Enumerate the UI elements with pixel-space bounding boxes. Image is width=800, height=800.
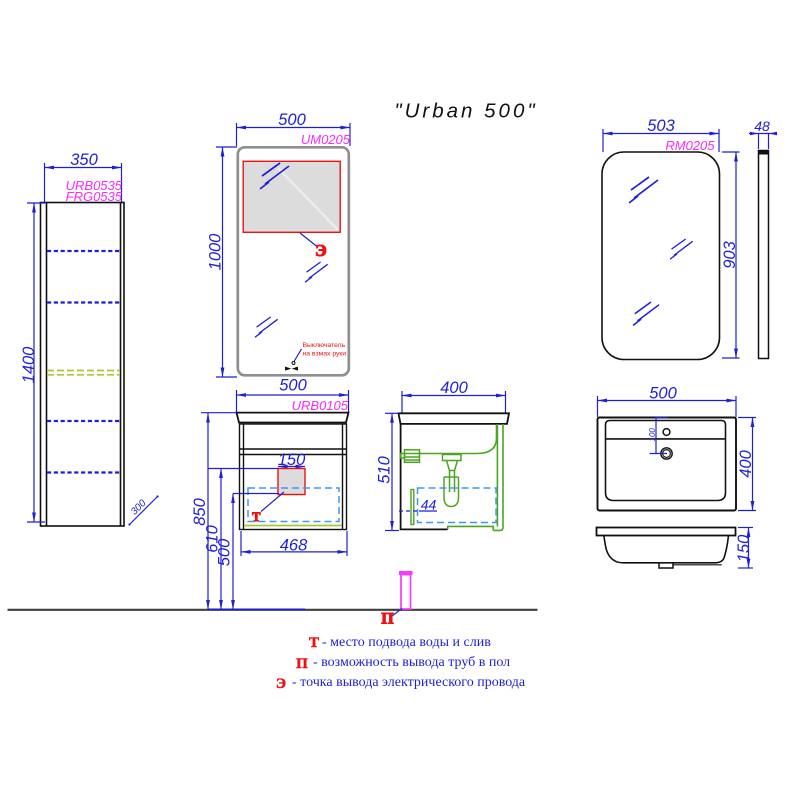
svg-text:Т: Т — [309, 635, 319, 651]
svg-text:100: 100 — [648, 428, 657, 442]
svg-text:П: П — [381, 611, 394, 628]
svg-text:Э: Э — [276, 676, 286, 692]
svg-text:Э: Э — [315, 241, 327, 260]
svg-text:1400: 1400 — [20, 346, 38, 384]
svg-text:500: 500 — [649, 385, 677, 403]
svg-text:- возможность вывода труб в по: - возможность вывода труб в пол — [313, 655, 510, 670]
svg-text:400: 400 — [737, 449, 755, 477]
svg-text:на взмах руки: на взмах руки — [303, 351, 347, 358]
svg-text:500: 500 — [279, 377, 307, 395]
svg-text:- точка вывода электрического: - точка вывода электрического провода — [292, 675, 526, 690]
svg-text:48: 48 — [754, 118, 770, 134]
svg-text:510: 510 — [376, 455, 394, 483]
svg-text:URB0105: URB0105 — [292, 398, 349, 413]
svg-text:1000: 1000 — [207, 233, 225, 271]
svg-text:Выключатель: Выключатель — [303, 342, 346, 349]
svg-text:850: 850 — [191, 497, 209, 525]
svg-text:UM0205: UM0205 — [301, 132, 351, 147]
svg-text:503: 503 — [647, 117, 675, 135]
svg-text:Т: Т — [252, 510, 261, 524]
svg-text:"Urban 500": "Urban 500" — [394, 100, 537, 123]
svg-text:150: 150 — [735, 534, 753, 562]
svg-text:903: 903 — [721, 240, 739, 268]
svg-text:400: 400 — [440, 379, 468, 397]
svg-text:44: 44 — [421, 497, 437, 513]
svg-text:- место подвода воды и слив: - место подвода воды и слив — [322, 635, 491, 650]
svg-text:350: 350 — [70, 151, 98, 169]
svg-text:500: 500 — [216, 538, 234, 566]
svg-text:П: П — [296, 656, 308, 672]
svg-text:500: 500 — [278, 111, 306, 129]
svg-text:RM0205: RM0205 — [665, 138, 715, 153]
